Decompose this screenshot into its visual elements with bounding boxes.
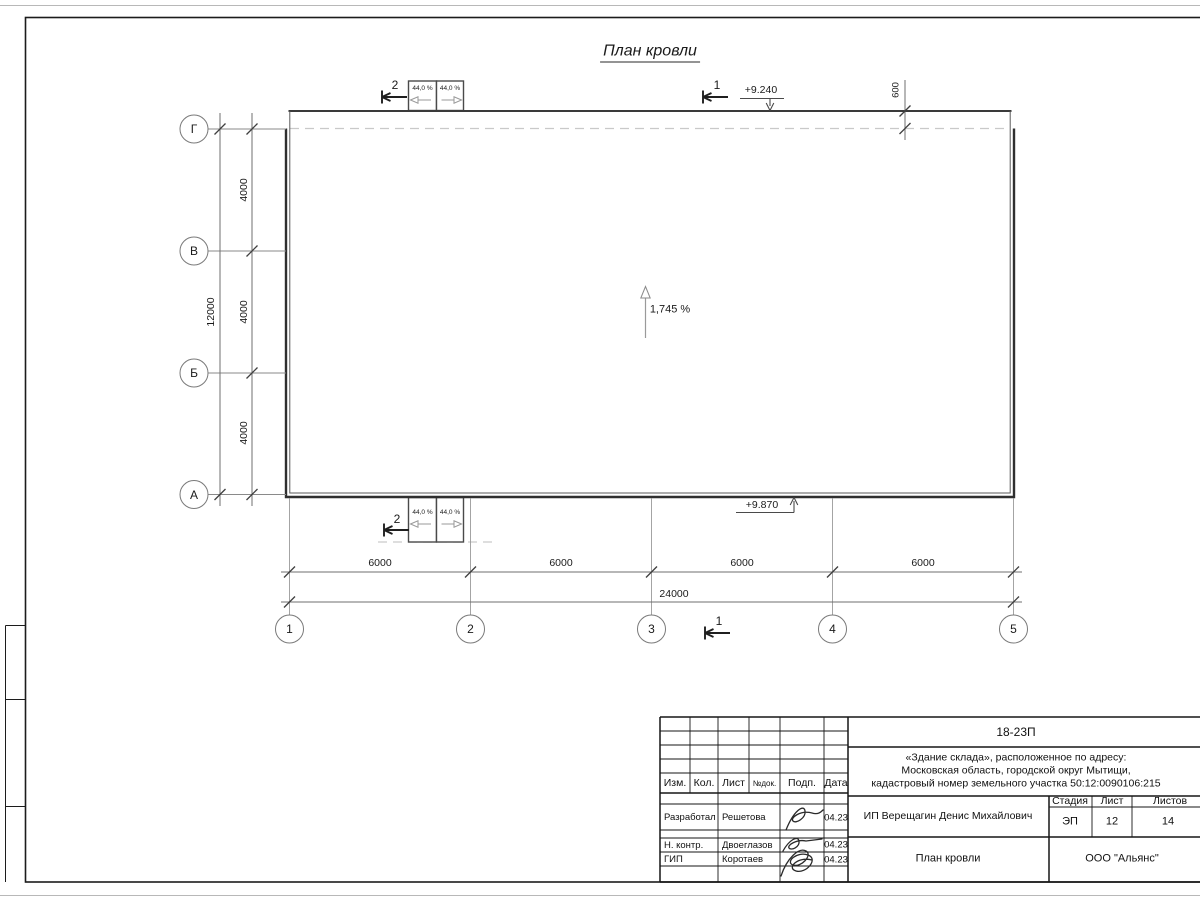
canopy-slope-arrow-icon (411, 97, 462, 527)
col-header-ndok: №док. (753, 780, 776, 788)
name-ncontrol: Двоеглазов (722, 841, 773, 851)
customer: ИП Верещагин Денис Михайлович (864, 811, 1033, 822)
section-2-label-bottom: 2 (394, 513, 401, 525)
date-ncontrol: 04.23 (824, 840, 848, 850)
object-address: «Здание склада», расположенное по адресу… (871, 752, 1160, 791)
dim-row-step: 4000 (239, 300, 250, 323)
dim-row-step: 4000 (239, 178, 250, 201)
axis-label-col-4: 4 (829, 623, 836, 635)
col-header-podp: Подп. (788, 778, 816, 789)
dim-row-total: 12000 (206, 297, 217, 326)
canopy-slope-label: 44,0 % (412, 86, 432, 93)
stage-label: Стадия (1052, 796, 1088, 807)
dim-col-total: 24000 (659, 589, 688, 600)
axis-label-row-v: В (190, 245, 198, 257)
signature-1 (786, 808, 823, 830)
axis-label-col-3: 3 (648, 623, 655, 635)
dim-col-step: 6000 (368, 558, 391, 569)
doc-code: 18-23П (996, 726, 1035, 738)
sheet-label: Лист (1101, 796, 1124, 807)
eaves-dashed-lines (290, 129, 1010, 543)
section-2-label-top: 2 (392, 79, 399, 91)
object-address-line3: кадастровый номер земельного участка 50:… (871, 778, 1160, 791)
col-header-data: Дата (824, 778, 847, 789)
date-gip: 04.23 (824, 855, 848, 865)
axis-label-col-1: 1 (286, 623, 293, 635)
object-address-line1: «Здание склада», расположенное по адресу… (871, 752, 1160, 765)
axis-label-row-g: Г (191, 123, 198, 135)
axis-label-col-2: 2 (467, 623, 474, 635)
axis-label-col-5: 5 (1010, 623, 1017, 635)
dim-row-step: 4000 (239, 421, 250, 444)
company: ООО "Альянс" (1085, 854, 1159, 865)
col-header-izm: Изм. (664, 778, 687, 789)
dimension-lines (220, 80, 1022, 602)
axis-label-row-b: Б (190, 367, 198, 379)
date-developer: 04.23 (824, 813, 848, 823)
slope-arrow-icon (641, 287, 650, 339)
elevation-top: +9.240 (745, 85, 777, 96)
dim-overhang: 600 (891, 82, 901, 98)
main-slope-label: 1,745 % (650, 305, 690, 316)
sheets-total: 14 (1162, 817, 1174, 828)
elevation-marks (736, 99, 798, 513)
drawing-title: План кровли (600, 44, 700, 63)
role-ncontrol: Н. контр. (664, 841, 703, 851)
dimension-ticks (215, 106, 1020, 608)
elevation-bottom: +9.870 (746, 500, 778, 511)
section-1-label-bottom: 1 (716, 615, 723, 627)
dim-col-step: 6000 (730, 558, 753, 569)
drawing-sheet: План кровли 2 1 2 1 +9.240 +9.870 1,745 … (0, 0, 1200, 900)
col-header-kol: Кол. (694, 778, 715, 789)
sheet-title: План кровли (916, 854, 981, 865)
canopy-slope-label: 44,0 % (412, 510, 432, 517)
canopy-slope-label: 44,0 % (440, 510, 460, 517)
canopy-boxes (409, 81, 464, 542)
dim-col-step: 6000 (549, 558, 572, 569)
dim-col-step: 6000 (911, 558, 934, 569)
role-developer: Разработал (664, 813, 716, 823)
signature-2 (783, 838, 822, 851)
canopy-slope-label: 44,0 % (440, 86, 460, 93)
sheet-no: 12 (1106, 817, 1118, 828)
left-margin-table (6, 626, 26, 883)
col-header-list: Лист (722, 778, 745, 789)
name-developer: Решетова (722, 813, 766, 823)
sheets-label: Листов (1153, 796, 1187, 807)
role-gip: ГИП (664, 855, 683, 865)
section-1-label-top: 1 (714, 79, 721, 91)
axis-label-row-a: А (190, 489, 198, 501)
object-address-line2: Московская область, городской округ Мыти… (871, 765, 1160, 778)
signature-3 (781, 850, 812, 876)
name-gip: Коротаев (722, 855, 763, 865)
axis-circles (180, 115, 1028, 643)
stage-value: ЭП (1062, 817, 1078, 828)
